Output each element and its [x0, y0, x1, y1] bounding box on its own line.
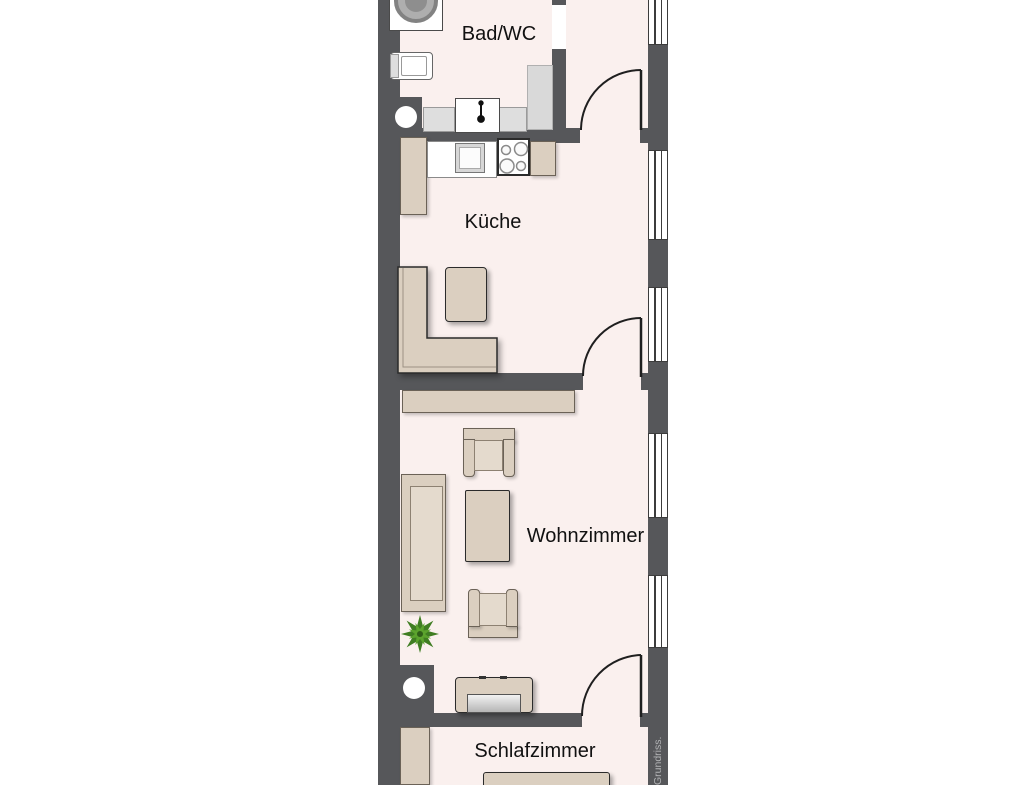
armchair-arm [503, 439, 515, 477]
window [648, 287, 668, 362]
tv-screen [467, 694, 521, 713]
room-label-wohnzimmer: Wohnzimmer [523, 525, 648, 548]
wall-living-bedroom [378, 713, 582, 727]
wardrobe [400, 727, 430, 785]
wall-kitchen-living [378, 373, 583, 390]
tv-lowboard-knob [479, 676, 486, 679]
bed [483, 772, 610, 785]
toilet-tank [390, 54, 399, 78]
shower [527, 65, 553, 130]
armchair-seat [474, 440, 503, 471]
bathroom-counter [423, 107, 455, 132]
kitchen-tall-cabinet [400, 137, 427, 215]
tv-lowboard-knob [500, 676, 507, 679]
kitchen-sink [459, 147, 481, 169]
stove [497, 138, 530, 176]
room-label-badwc: Bad/WC [457, 23, 541, 46]
room-label-kueche: Küche [462, 211, 524, 234]
pipe-circle [395, 106, 417, 128]
bathroom-counter [498, 107, 527, 132]
floorplan-canvas: Bad/WC Küche Wohnzimmer Schlafzimmer Gru… [0, 0, 1018, 785]
wall-kitchen-living-stub [641, 373, 648, 390]
sofa-seat [410, 486, 443, 601]
bathroom-door [552, 5, 566, 49]
right-exterior-wall [648, 0, 668, 785]
wall-bath-kitchen-stub [640, 128, 648, 143]
coffee-table [465, 490, 510, 562]
washing-machine [389, 0, 443, 31]
window [648, 0, 668, 45]
watermark-grundriss: Grundriss. [648, 732, 668, 785]
window [648, 433, 668, 518]
dining-table [445, 267, 487, 322]
wall-living-bedroom-stub [640, 713, 648, 727]
pipe-circle [403, 677, 425, 699]
armchair-seat [479, 593, 507, 626]
kitchen-counter-end [530, 141, 556, 176]
washbasin [455, 98, 500, 133]
window [648, 575, 668, 648]
window [648, 150, 668, 240]
sideboard [402, 390, 575, 413]
room-label-schlafzimmer: Schlafzimmer [471, 740, 599, 763]
toilet-bowl [401, 56, 427, 76]
armchair-arm [506, 589, 518, 627]
